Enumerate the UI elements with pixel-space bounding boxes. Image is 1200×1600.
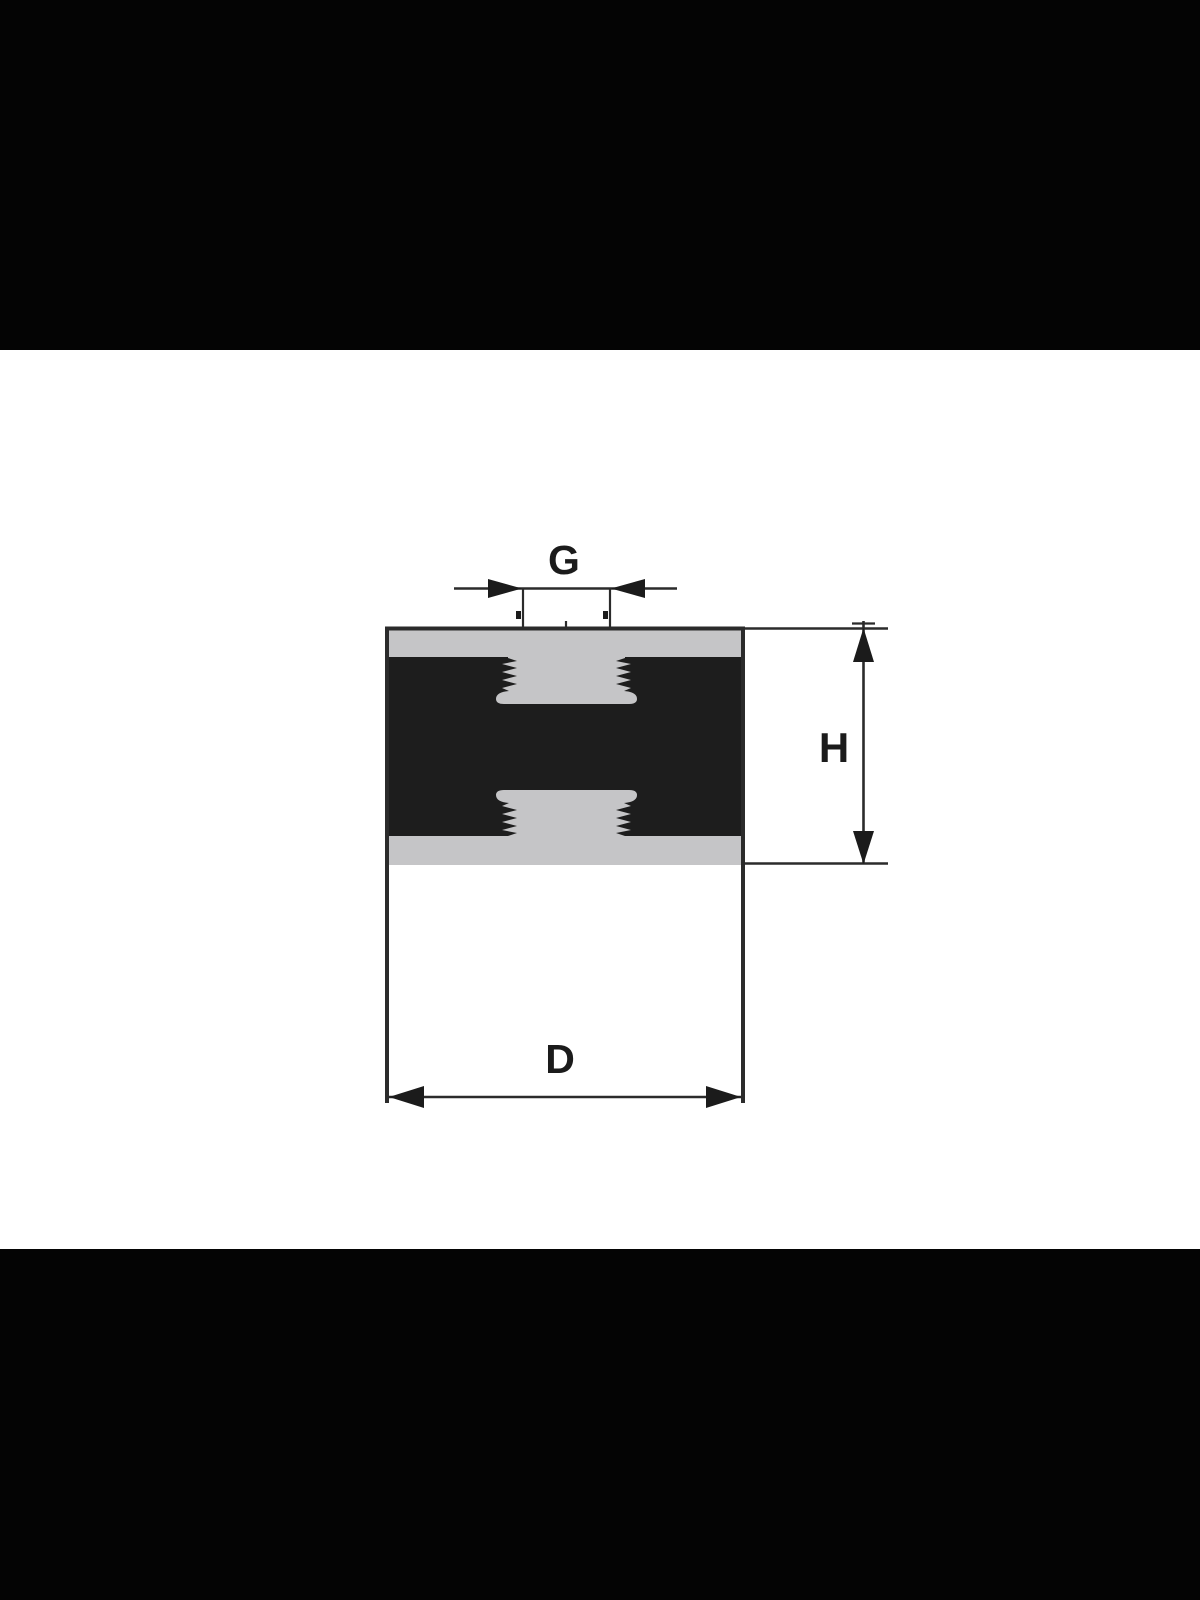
threaded-hole-bottom bbox=[496, 790, 637, 849]
d-label: D bbox=[545, 1036, 575, 1082]
letterbox-bottom bbox=[0, 1249, 1200, 1600]
threaded-hole-top bbox=[496, 645, 637, 704]
letterbox-top bbox=[0, 0, 1200, 350]
g-thread-tick-left bbox=[516, 611, 521, 619]
technical-drawing: G H D bbox=[0, 0, 1200, 1600]
g-label: G bbox=[548, 537, 580, 583]
h-label: H bbox=[819, 724, 849, 771]
g-thread-tick-right bbox=[603, 611, 608, 619]
product-drawing-image: G H D bbox=[0, 0, 1200, 1600]
